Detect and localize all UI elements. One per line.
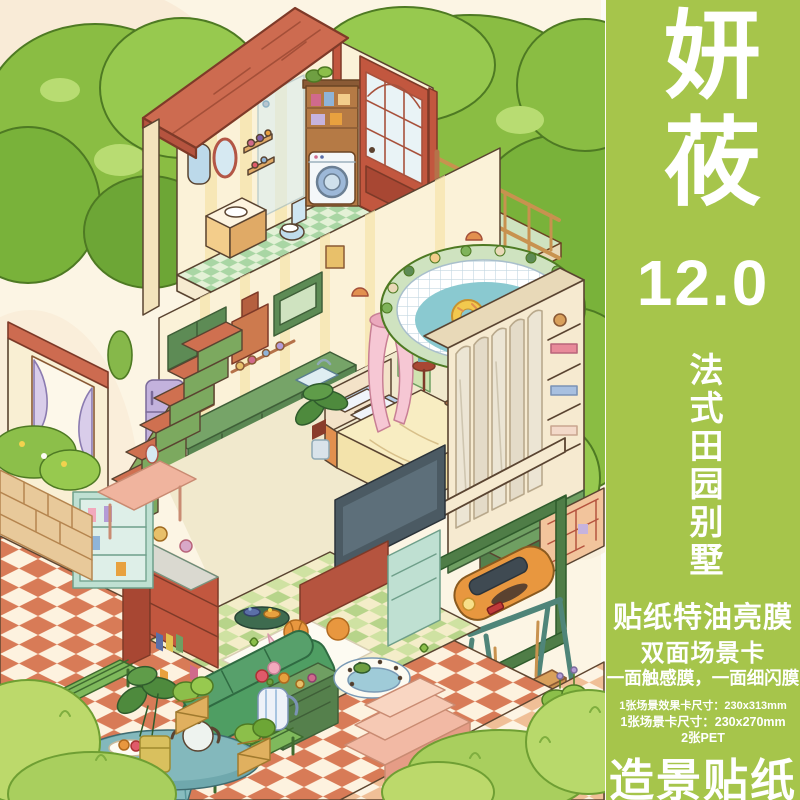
ivy-icon (108, 331, 132, 379)
feature-line3: 一面触感膜，一面细闪膜 (606, 665, 800, 690)
laundry-cabinet (303, 67, 361, 206)
shower-head-icon (263, 101, 269, 107)
product-banner: 妍莜 12.0 法式田园别墅 贴纸特油亮膜 双面场景卡 一面触感膜，一面细闪膜 … (606, 0, 800, 800)
feature-title: 贴纸特油亮膜 (606, 594, 800, 636)
version-number: 12.0 (606, 246, 800, 320)
door-knob-icon (369, 147, 375, 153)
villa-scene (0, 0, 605, 800)
brand-name: 妍莜 (652, 4, 754, 218)
picture-frame-icon (326, 246, 344, 268)
product-poster: 妍莜 12.0 法式田园别墅 贴纸特油亮膜 双面场景卡 一面触感膜，一面细闪膜 … (0, 0, 800, 800)
pouf-icon (327, 618, 349, 640)
mirror-icon (214, 139, 236, 177)
feature-line2: 双面场景卡 (606, 633, 800, 668)
villa-illustration (0, 0, 605, 800)
hand-mirror-icon (146, 445, 158, 463)
coffee-table (235, 607, 289, 629)
globe-icon (153, 527, 167, 541)
series-title: 法式田园别墅 (686, 352, 720, 580)
footer-title: 造景贴纸 (606, 744, 800, 800)
cake-icon (180, 540, 192, 552)
